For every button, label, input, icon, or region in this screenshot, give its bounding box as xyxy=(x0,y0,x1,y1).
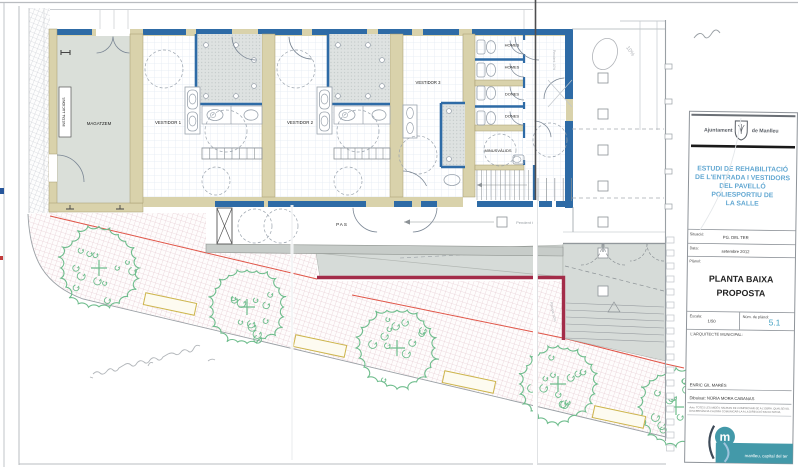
svg-text:Dibuixat: NÚRIA MORA CABANAS: Dibuixat: NÚRIA MORA CABANAS xyxy=(689,395,754,401)
svg-text:VESTIDOR 3: VESTIDOR 3 xyxy=(416,80,442,85)
svg-text:VESTIDOR 1: VESTIDOR 1 xyxy=(155,120,182,125)
svg-text:DONES: DONES xyxy=(505,92,520,97)
svg-text:L'ARQUITECTE MUNICIPAL:: L'ARQUITECTE MUNICIPAL: xyxy=(690,331,743,337)
svg-text:ENRIC GIL MARÉS: ENRIC GIL MARÉS xyxy=(690,382,727,388)
svg-text:PAS: PAS xyxy=(336,222,348,227)
svg-text:PLANTA BAIXA: PLANTA BAIXA xyxy=(709,274,774,285)
svg-text:5.1: 5.1 xyxy=(769,317,781,327)
svg-text:Núm. de plànol:: Núm. de plànol: xyxy=(743,315,770,319)
svg-text:Plànol:: Plànol: xyxy=(689,259,701,263)
svg-text:Situació:: Situació: xyxy=(690,232,705,236)
svg-text:PROPOSTA: PROPOSTA xyxy=(717,288,766,299)
svg-text:INSTAL.LACIONS: INSTAL.LACIONS xyxy=(62,97,66,127)
svg-text:1/50: 1/50 xyxy=(707,319,716,324)
svg-text:setembre 2012: setembre 2012 xyxy=(722,249,751,254)
svg-text:Pendent 10%: Pendent 10% xyxy=(552,50,556,70)
svg-text:MAGATZEM: MAGATZEM xyxy=(87,121,112,126)
svg-text:manlleu, capital del ter: manlleu, capital del ter xyxy=(745,453,789,459)
svg-text:Ajuntament: Ajuntament xyxy=(704,127,733,133)
svg-text:MINUSVÀLIDS: MINUSVÀLIDS xyxy=(484,148,511,153)
svg-text:DE L'ENTRADA I VESTIDORS: DE L'ENTRADA I VESTIDORS xyxy=(695,174,791,182)
svg-text:LA SALLE: LA SALLE xyxy=(726,200,760,207)
svg-text:de Manlleu: de Manlleu xyxy=(752,128,779,134)
svg-text:VESTIDOR 2: VESTIDOR 2 xyxy=(287,120,314,125)
svg-text:HOMES: HOMES xyxy=(505,65,520,70)
svg-text:m: m xyxy=(720,430,731,444)
svg-text:DONES: DONES xyxy=(505,114,520,119)
svg-text:Escala:: Escala: xyxy=(690,314,703,318)
svg-text:PG. DEL TER: PG. DEL TER xyxy=(723,235,749,240)
svg-text:Data:: Data: xyxy=(690,246,699,250)
